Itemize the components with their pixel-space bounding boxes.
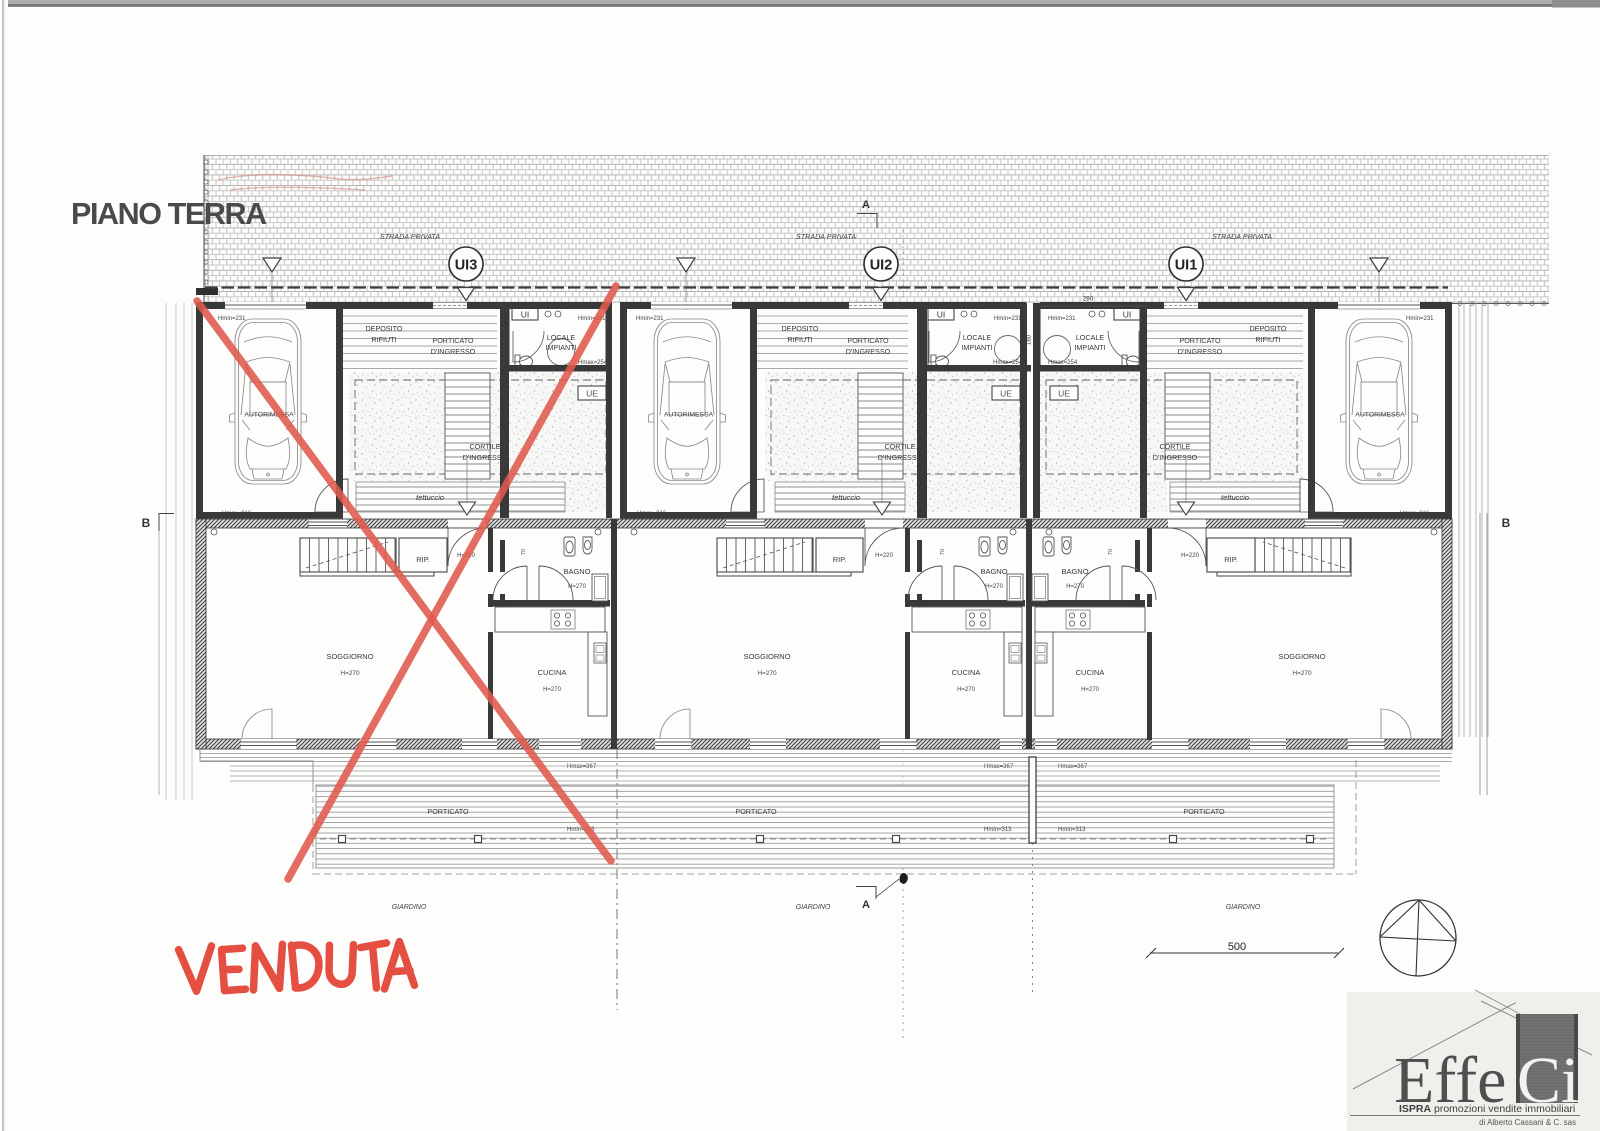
svg-text:ISPRA promozioni vendite immob: ISPRA promozioni vendite immobiliari	[1399, 1103, 1575, 1115]
svg-text:tettuccio: tettuccio	[832, 493, 860, 502]
svg-text:UI: UI	[521, 310, 530, 320]
svg-text:CUCINA: CUCINA	[538, 668, 567, 677]
svg-text:H=220: H=220	[1181, 553, 1200, 559]
svg-text:IMPIANTI: IMPIANTI	[1074, 343, 1105, 352]
svg-text:H=270: H=270	[1292, 670, 1312, 677]
svg-text:H=270: H=270	[1081, 687, 1100, 693]
svg-text:RIP.: RIP.	[833, 555, 847, 564]
svg-text:A: A	[862, 899, 870, 911]
svg-text:BAGNO: BAGNO	[563, 567, 590, 576]
svg-text:LOCALE: LOCALE	[547, 333, 576, 342]
svg-text:UI: UI	[937, 310, 946, 320]
svg-text:H=270: H=270	[757, 670, 777, 677]
svg-text:AUTORIMESSA: AUTORIMESSA	[1355, 412, 1405, 419]
svg-text:STRADA PRIVATA: STRADA PRIVATA	[1212, 232, 1272, 241]
svg-text:STRADA PRIVATA: STRADA PRIVATA	[380, 232, 440, 241]
svg-text:GIARDINO: GIARDINO	[1226, 904, 1261, 911]
svg-text:Hmax=367: Hmax=367	[567, 764, 597, 770]
svg-text:H=220: H=220	[875, 553, 894, 559]
svg-text:Hmin=231: Hmin=231	[636, 316, 664, 322]
svg-text:BAGNO: BAGNO	[1061, 567, 1088, 576]
svg-text:Hmin=313: Hmin=313	[1058, 827, 1086, 833]
svg-text:GIARDINO: GIARDINO	[796, 904, 831, 911]
svg-text:A: A	[862, 199, 870, 211]
svg-text:500: 500	[1228, 941, 1246, 953]
svg-text:H=270: H=270	[985, 584, 1004, 590]
svg-text:UE: UE	[586, 389, 598, 399]
svg-text:UI: UI	[1123, 310, 1132, 320]
svg-text:70: 70	[940, 549, 946, 555]
svg-text:DEPOSITO: DEPOSITO	[1249, 324, 1286, 333]
svg-text:Hmin=231: Hmin=231	[994, 316, 1022, 322]
svg-text:UI2: UI2	[870, 258, 893, 274]
svg-text:290: 290	[1083, 296, 1094, 303]
svg-text:UI1: UI1	[1175, 258, 1198, 274]
svg-text:RIFIUTI: RIFIUTI	[1255, 335, 1280, 344]
svg-text:di Alberto Cassani & C. sas: di Alberto Cassani & C. sas	[1479, 1118, 1576, 1127]
svg-text:Hmin=231: Hmin=231	[218, 316, 246, 322]
svg-text:SOGGIORNO: SOGGIORNO	[743, 652, 790, 661]
svg-text:CORTILE: CORTILE	[884, 442, 915, 451]
svg-text:D'INGRESSO: D'INGRESSO	[1178, 347, 1223, 356]
svg-text:D'INGRESSO: D'INGRESSO	[431, 347, 476, 356]
svg-text:D'INGRESSO: D'INGRESSO	[878, 453, 923, 462]
svg-text:H=270: H=270	[957, 687, 976, 693]
svg-text:70: 70	[521, 549, 527, 555]
svg-text:LOCALE: LOCALE	[1076, 333, 1105, 342]
svg-text:RIFIUTI: RIFIUTI	[787, 335, 812, 344]
svg-text:B: B	[1502, 516, 1511, 530]
svg-text:BAGNO: BAGNO	[980, 567, 1007, 576]
svg-text:160: 160	[1027, 334, 1033, 345]
svg-text:RIFIUTI: RIFIUTI	[371, 335, 396, 344]
svg-text:PORTICATO: PORTICATO	[427, 807, 469, 816]
svg-text:PORTICATO: PORTICATO	[735, 807, 777, 816]
svg-text:IMPIANTI: IMPIANTI	[961, 343, 992, 352]
svg-text:D'INGRESSO: D'INGRESSO	[1153, 453, 1198, 462]
svg-text:GIARDINO: GIARDINO	[392, 904, 427, 911]
svg-text:H=270: H=270	[543, 687, 562, 693]
svg-text:tettuccio: tettuccio	[1221, 493, 1249, 502]
svg-text:DEPOSITO: DEPOSITO	[781, 324, 818, 333]
svg-text:RIP.: RIP.	[416, 555, 430, 564]
svg-text:PIANO TERRA: PIANO TERRA	[71, 197, 267, 231]
svg-text:70: 70	[1108, 549, 1114, 555]
svg-text:DEPOSITO: DEPOSITO	[365, 324, 402, 333]
svg-text:AUTORIMESSA: AUTORIMESSA	[664, 412, 714, 419]
svg-text:UE: UE	[1058, 389, 1070, 399]
svg-text:PORTICATO: PORTICATO	[1179, 336, 1221, 345]
svg-text:H=270: H=270	[340, 670, 360, 677]
svg-text:IMPIANTI: IMPIANTI	[545, 343, 576, 352]
svg-text:CORTILE: CORTILE	[1159, 442, 1190, 451]
svg-text:Hmax=367: Hmax=367	[984, 764, 1014, 770]
svg-text:CORTILE: CORTILE	[469, 442, 500, 451]
svg-text:PORTICATO: PORTICATO	[847, 336, 889, 345]
svg-text:UI3: UI3	[455, 258, 478, 274]
svg-text:RIP.: RIP.	[1224, 555, 1238, 564]
svg-text:STRADA PRIVATA: STRADA PRIVATA	[796, 232, 856, 241]
svg-text:H=270: H=270	[1066, 584, 1085, 590]
svg-text:PORTICATO: PORTICATO	[1183, 807, 1225, 816]
svg-text:Hmin=231: Hmin=231	[1406, 316, 1434, 322]
svg-text:LOCALE: LOCALE	[963, 333, 992, 342]
svg-text:B: B	[142, 516, 151, 530]
svg-text:SOGGIORNO: SOGGIORNO	[1278, 652, 1325, 661]
svg-text:tettuccio: tettuccio	[416, 493, 444, 502]
svg-text:UE: UE	[1000, 389, 1012, 399]
svg-text:SOGGIORNO: SOGGIORNO	[326, 652, 373, 661]
svg-text:Hmin=231: Hmin=231	[1048, 316, 1076, 322]
svg-text:CUCINA: CUCINA	[1076, 668, 1105, 677]
svg-text:D'INGRESSO: D'INGRESSO	[846, 347, 891, 356]
svg-text:CUCINA: CUCINA	[952, 668, 981, 677]
svg-text:Hmax=367: Hmax=367	[1058, 764, 1088, 770]
svg-text:Hmin=313: Hmin=313	[984, 827, 1012, 833]
svg-text:PORTICATO: PORTICATO	[432, 336, 474, 345]
